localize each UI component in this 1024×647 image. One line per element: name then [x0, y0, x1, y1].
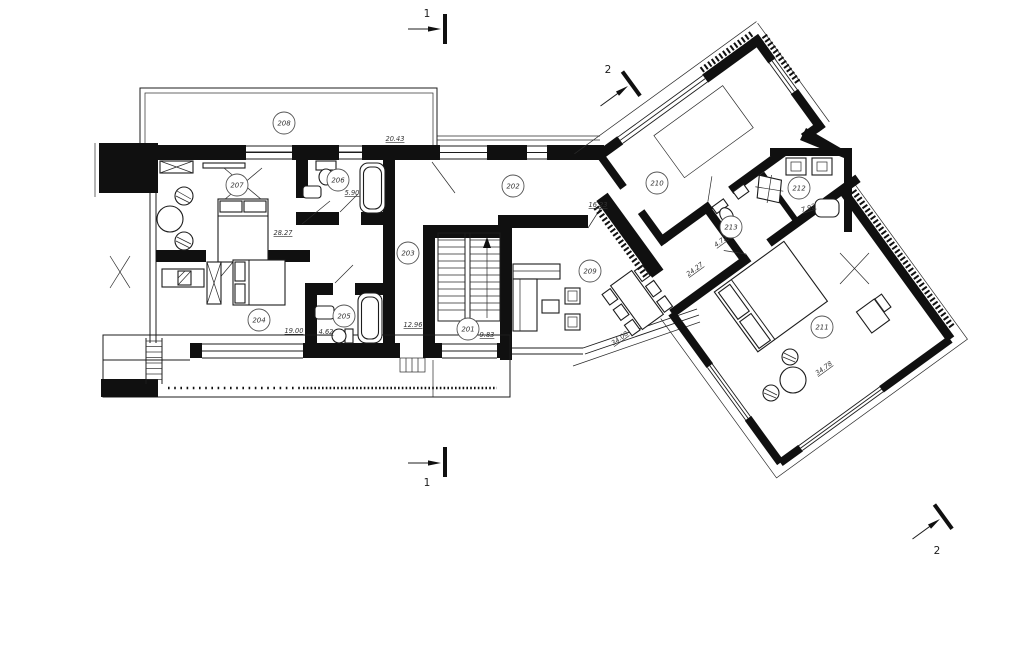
chimney-block — [99, 143, 158, 193]
bathtub — [815, 199, 839, 217]
section-label: 2 — [605, 64, 612, 76]
window — [799, 387, 883, 451]
room-label-203: 203 — [401, 250, 414, 258]
dim-208: 20.43 — [386, 135, 405, 143]
room-label-212: 212 — [792, 185, 806, 193]
room-label-205: 205 — [337, 313, 351, 321]
dim-201: 9.83 — [480, 331, 495, 339]
dim-205: 4.62 — [319, 328, 334, 336]
dim-211: 34.78 — [814, 360, 834, 378]
room-label-207: 207 — [230, 182, 244, 190]
section-marker-1-top: 1 — [408, 8, 447, 44]
bedroom-204-furniture — [207, 260, 285, 305]
dim-206: 5.90 — [345, 189, 360, 197]
floor-plan-svg: 1 1 2 2 — [0, 0, 1024, 647]
section-marker-1-bottom: 1 — [408, 447, 447, 489]
terrace-208 — [140, 88, 600, 152]
armchair — [565, 288, 580, 304]
section-label: 1 — [424, 8, 431, 20]
washbasin — [303, 186, 321, 198]
dim-202: 16.23 — [589, 201, 608, 209]
sofa — [513, 264, 560, 279]
washbasin — [786, 158, 806, 175]
room-label-210: 210 — [650, 180, 664, 188]
section-label: 2 — [934, 545, 941, 557]
round-table — [780, 367, 806, 393]
angled-wing — [553, 22, 981, 478]
room-label-204: 204 — [252, 317, 265, 325]
staircase — [438, 233, 500, 321]
section-label: 1 — [424, 477, 431, 489]
dining-table — [611, 271, 664, 330]
dining-set — [601, 263, 673, 336]
room-label-206: 206 — [331, 177, 345, 185]
dim-209-corridor: 24.27 — [685, 260, 706, 278]
room-label-209: 209 — [583, 268, 597, 276]
armchair — [565, 314, 580, 330]
washbasin — [315, 306, 334, 319]
room-label-201: 201 — [461, 326, 474, 334]
room-label-211: 211 — [815, 324, 828, 332]
washbasin — [812, 158, 832, 175]
dim-203: 12.96 — [404, 321, 423, 329]
rug — [654, 86, 753, 178]
dim-207: 28.27 — [274, 229, 294, 237]
ladder — [146, 338, 162, 384]
room-label-213: 213 — [724, 224, 737, 232]
entry-steps — [400, 358, 425, 372]
dim-209: 34.08 — [610, 330, 630, 348]
section-marker-2-bottom: 2 — [904, 503, 954, 557]
room-label-202: 202 — [506, 183, 520, 191]
dim-204: 19.00 — [285, 327, 304, 335]
room-label-208: 208 — [277, 120, 291, 128]
round-table — [157, 206, 183, 232]
coffee-table — [542, 300, 559, 313]
floor-plan-page: 1 1 2 2 — [0, 0, 1024, 647]
